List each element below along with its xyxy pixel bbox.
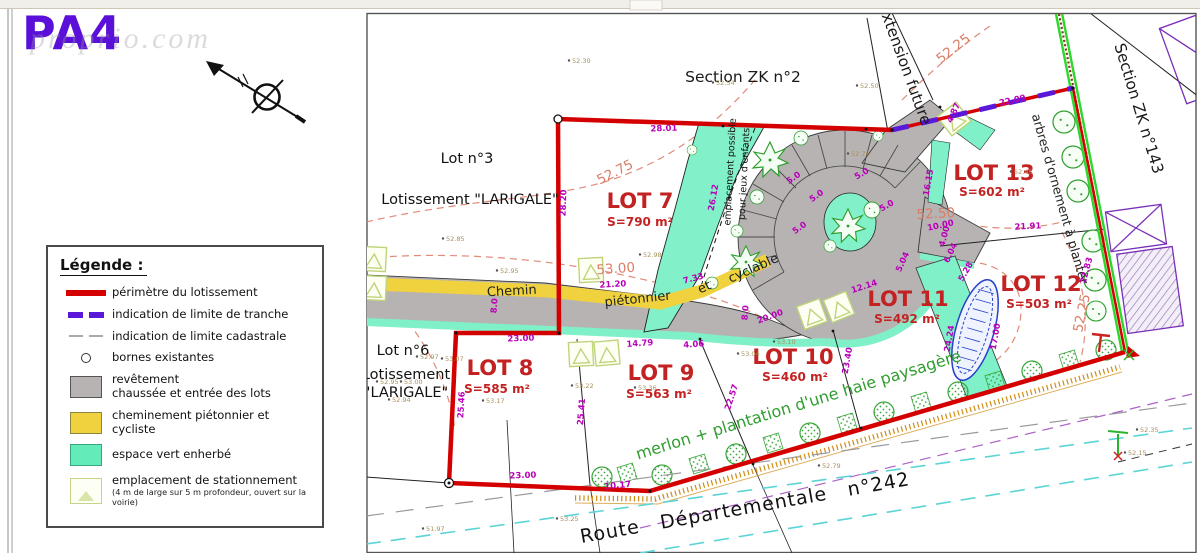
north-arrow-icon — [206, 61, 305, 122]
legend-title: Légende : — [60, 256, 147, 276]
plan-label: 52.76 — [851, 150, 870, 158]
plan-label: 52.94 — [392, 396, 411, 404]
plan-label: 53.36 — [638, 384, 657, 392]
plan-label: 8.0 — [740, 305, 751, 321]
legend-item-revetement: revêtement chaussée et entrée des lots — [60, 373, 312, 401]
plan-label: 52.30 — [572, 57, 591, 65]
plan-label: 53.07 — [445, 355, 464, 363]
legend-item-perimetre: périmètre du lotissement — [60, 286, 312, 300]
plan-label: 52.45 — [1014, 168, 1033, 176]
plan-label: LOT 10 — [752, 345, 833, 369]
plan-label: 53.04 — [741, 350, 760, 358]
plan-label: S=602 m² — [959, 185, 1025, 199]
plan-label: LOT 11 — [867, 287, 948, 311]
plan-label: 28.20 — [559, 189, 570, 216]
pavement-swatch — [70, 376, 102, 398]
plan-page: Section ZK n°2Extension futureSection ZK… — [0, 0, 1200, 553]
green-swatch — [70, 444, 102, 466]
plan-label: S=563 m² — [626, 387, 692, 401]
legend-item-stationnement: emplacement de stationnement (4 m de lar… — [60, 474, 312, 507]
plan-label: 52.95 — [380, 378, 399, 386]
plan-label: 52.54 — [716, 79, 735, 87]
plan-label: 53.17 — [486, 397, 505, 405]
watermark: proprio.com — [30, 22, 211, 56]
plan-label: 21.20 — [599, 279, 626, 290]
parking-swatch — [70, 478, 102, 504]
legend-item-espace-vert: espace vert enherbé — [60, 444, 312, 466]
building-hatched — [1117, 246, 1184, 333]
plan-label: 52.85 — [446, 235, 465, 243]
plan-label: S=503 m² — [1006, 297, 1072, 311]
plan-label: LOT 7 — [607, 189, 674, 213]
plan-label: S=492 m² — [874, 312, 940, 326]
plan-label: 53.10 — [777, 338, 796, 346]
legend-item-cadastrale: indication de limite cadastrale — [60, 330, 312, 344]
perimeter-swatch — [66, 290, 106, 296]
plan-label: 23.00 — [509, 471, 536, 482]
plan-label: LOT 8 — [467, 356, 534, 380]
plan-label: 51.97 — [426, 525, 445, 533]
plan-label: 53.25 — [560, 515, 579, 523]
cadastral-swatch — [69, 335, 83, 337]
plan-label: 52.50 — [860, 82, 879, 90]
plan-label: 52.97 — [420, 353, 439, 361]
building-outline-x — [1105, 204, 1166, 251]
plan-label: 21.91 — [1014, 221, 1041, 232]
plan-label: 52.15 — [1128, 449, 1147, 457]
plan-label: S=585 m² — [464, 382, 530, 396]
plan-label: S=460 m² — [762, 370, 828, 384]
plan-label: S=790 m² — [607, 215, 673, 229]
plan-label: Chemin — [487, 283, 538, 301]
plan-label: 53.22 — [575, 382, 594, 390]
legend-item-cheminement: cheminement piétonnier et cycliste — [60, 409, 312, 437]
plan-label: 23.00 — [507, 334, 534, 345]
plan-label: 25.46 — [456, 391, 467, 418]
legend-item-bornes: bornes existantes — [60, 351, 312, 365]
plan-label: 52.35 — [1140, 426, 1159, 434]
plan-label: Lotissement "LARIGALE" — [381, 192, 558, 208]
plan-label: Lot n°3 — [441, 151, 494, 167]
plan-label: 52.95 — [500, 267, 519, 275]
plan-label: 53.00 — [404, 378, 423, 386]
top-tab — [630, 0, 662, 10]
plan-label: 53.00 — [596, 260, 636, 279]
legend-panel: Légende : périmètre du lotissement indic… — [46, 245, 324, 528]
plan-label: 28.01 — [650, 124, 677, 135]
path-swatch — [70, 412, 102, 434]
plan-label: 8.0 — [489, 298, 500, 314]
plan-label: 52.79 — [822, 462, 841, 470]
plan-label: Section ZK n°2 — [685, 68, 801, 86]
plan-label: LOT 9 — [628, 361, 695, 385]
plan-label: LOT 12 — [1000, 272, 1081, 296]
borne-swatch — [81, 353, 91, 363]
tranche-swatch — [68, 312, 83, 318]
plan-label: 14.79 — [626, 338, 654, 350]
plan-label: 52.98 — [643, 251, 662, 259]
legend-item-tranche: indication de limite de tranche — [60, 308, 312, 322]
plan-label: 4.06 — [683, 339, 705, 350]
